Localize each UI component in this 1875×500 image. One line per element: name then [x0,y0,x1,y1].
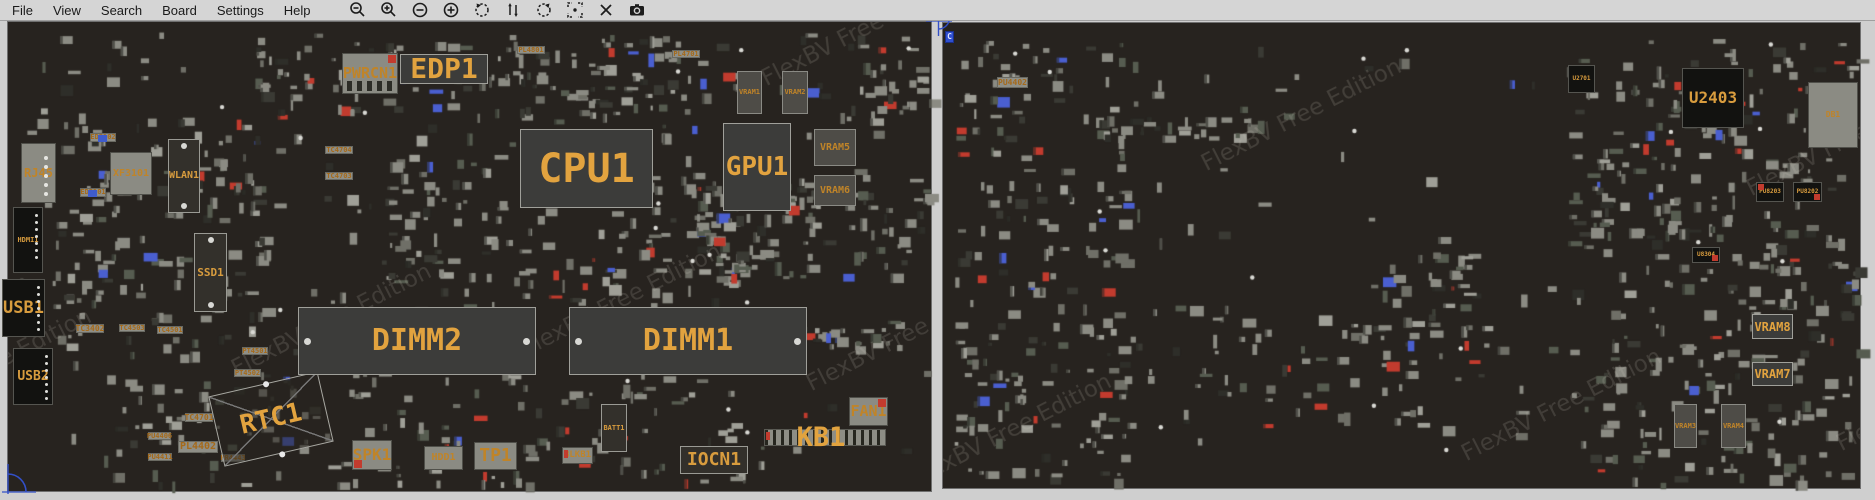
component-blkb1[interactable]: BLKB1 [562,447,593,464]
menu-board[interactable]: Board [152,1,207,20]
component-label: ED3101 [80,189,105,196]
component-tc4503[interactable]: TC4503 [119,324,145,332]
menu-search[interactable]: Search [91,1,152,20]
component-tc4703[interactable]: TC4703 [325,172,353,180]
free-edition-watermark: FlexBV Free Edition [1457,343,1666,466]
component-label: VRAM8 [1754,321,1790,333]
free-edition-watermark: FlexBV Free Edition [802,273,932,396]
component-label: U2701 [1572,76,1590,82]
component-label: TC4704 [326,147,351,154]
component-dimm2[interactable]: DIMM2 [298,307,536,375]
component-label: DB1 [1826,111,1840,119]
component-pu4402[interactable]: PU4402 [997,77,1028,88]
component-label: KB1 [797,424,846,451]
component-label: TC4503 [119,325,144,332]
component-usb1[interactable]: USB1 [2,279,45,337]
component-label: PT4502 [235,370,260,377]
component-dimm1[interactable]: DIMM1 [569,307,807,375]
component-label: HDMI1 [17,237,38,244]
component-spk1[interactable]: SPK1 [352,440,392,470]
component-usb2[interactable]: USB2 [13,348,53,405]
component-label: VRAM3 [1675,423,1696,430]
component-label: CPU1 [538,149,634,189]
component-label: PU8203 [1759,189,1781,195]
component-c[interactable]: C [945,31,954,43]
component-label: FAN1 [850,404,886,419]
menu-help[interactable]: Help [274,1,321,20]
component-label: WLAN1 [169,171,199,181]
component-label: IOCN1 [687,451,741,469]
component-label: TC3402 [76,325,105,333]
component-label: C [947,33,952,41]
component-pu4406[interactable]: PU4406 [148,432,171,440]
component-label: USB2 [17,370,48,383]
free-edition-watermark: FlexBV Free Edition [1832,333,1861,456]
component-label: PWRCN1 [343,66,397,81]
component-label: PU4406 [147,433,172,440]
component-label: PU4402 [998,79,1027,87]
component-wlan1[interactable]: WLAN1 [168,139,200,213]
component-label: ED3102 [90,134,115,141]
component-label: PL4701 [673,51,698,58]
rotate-cw-icon[interactable] [535,1,553,19]
component-vram6[interactable]: VRAM6 [814,175,856,206]
toolbar [349,1,646,19]
component-label: XF3101 [113,169,149,179]
component-label: GPU1 [726,154,789,180]
component-label: TC4701 [185,414,214,422]
component-u2403[interactable]: U2403 [1682,68,1744,128]
center-view-icon[interactable] [566,1,584,19]
rotate-ccw-icon[interactable] [473,1,491,19]
component-tc3402[interactable]: TC3402 [76,324,104,333]
workspace: FlexBV Free EditionFlexBV Free EditionFl… [0,21,1875,500]
component-pt4501[interactable]: PT4501 [242,347,268,355]
component-label: RJ45 [24,167,53,179]
component-pl4801[interactable]: PL4801 [517,46,545,54]
component-kb1[interactable]: KB1 [786,420,856,454]
component-batt1[interactable]: BATT1 [601,404,627,452]
component-pwrcn1[interactable]: PWRCN1 [342,53,398,94]
zoom-out-icon[interactable] [349,1,367,19]
component-pu4411[interactable]: PU4411 [148,453,172,461]
component-label: PL4402 [180,442,216,452]
component-label: SSD1 [197,267,224,278]
component-label: SPK1 [353,447,392,463]
component-vram1[interactable]: VRAM1 [737,71,762,114]
minus-circle-icon[interactable] [411,1,429,19]
component-ed3101[interactable]: ED3101 [80,188,106,197]
component-label: RTC1 [238,399,305,438]
component-label: DIMM1 [643,326,733,356]
component-pu8202[interactable]: PU8202 [1793,182,1822,202]
component-gpu1[interactable]: GPU1 [723,123,791,211]
component-label: BATT1 [603,425,624,432]
component-tp1[interactable]: TP1 [474,442,517,470]
component-vram7[interactable]: VRAM7 [1752,362,1793,386]
component-tc4501[interactable]: TC4501 [157,326,183,334]
component-db1[interactable]: DB1 [1808,82,1858,148]
component-label: PU4411 [147,454,172,461]
component-label: DIMM2 [372,326,462,356]
menu-bar: File View Search Board Settings Help [0,0,1875,21]
free-edition-watermark: FlexBV Free Edition [1197,53,1406,176]
component-label: USB1 [3,300,44,317]
component-xf3101[interactable]: XF3101 [110,152,152,195]
component-cpu1[interactable]: CPU1 [520,129,653,208]
component-pu8203[interactable]: PU8203 [1756,182,1784,202]
component-u8304[interactable]: U8304 [1692,247,1720,263]
component-ssd1[interactable]: SSD1 [194,233,227,312]
component-vram5[interactable]: VRAM5 [814,129,856,166]
component-label: TC4501 [157,327,182,334]
component-label: VRAM6 [820,186,850,196]
component-iocn1[interactable]: IOCN1 [680,446,748,474]
component-label: VRAM5 [820,143,850,153]
component-label: PU8202 [1797,189,1819,195]
component-pl4701[interactable]: PL4701 [672,50,700,58]
component-label: VRAM7 [1754,368,1790,380]
component-label: BLKB1 [564,451,591,460]
component-tc4704[interactable]: TC4704 [325,146,353,154]
menu-view[interactable]: View [43,1,91,20]
menu-settings[interactable]: Settings [207,1,274,20]
screenshot-camera-icon[interactable] [628,1,646,19]
component-label: VRAM2 [784,89,805,96]
component-pl4402[interactable]: PL4402 [178,441,218,453]
component-tc4701[interactable]: TC4701 [185,413,213,422]
component-vram4[interactable]: VRAM4 [1721,404,1746,448]
component-vram8[interactable]: VRAM8 [1752,314,1793,339]
component-label: VRAM4 [1723,423,1744,430]
component-label: U8304 [1697,252,1715,258]
component-pt4502[interactable]: PT4502 [234,369,261,377]
component-label: EDP1 [410,55,477,83]
component-hdd1[interactable]: HDD1 [424,446,463,470]
component-label: PL4801 [518,47,543,54]
component-label: U2403 [1689,90,1737,106]
flexbv-window: File View Search Board Settings Help [0,0,1875,500]
free-edition-watermark: FlexBV Free Edition [942,368,1116,489]
component-label: VRAM1 [739,89,760,96]
component-rj45[interactable]: RJ45 [21,143,56,203]
component-ed3102[interactable]: ED3102 [90,133,116,142]
close-icon[interactable] [597,1,615,19]
component-vram3[interactable]: VRAM3 [1674,404,1697,448]
plus-circle-icon[interactable] [442,1,460,19]
flip-vertical-icon[interactable] [504,1,522,19]
component-u2701[interactable]: U2701 [1568,65,1595,93]
component-label: TP1 [479,447,512,465]
component-label: HDD1 [431,453,455,463]
component-vram2[interactable]: VRAM2 [782,71,808,114]
component-label: TC4703 [326,173,351,180]
component-edp1[interactable]: EDP1 [400,54,488,84]
zoom-in-icon[interactable] [380,1,398,19]
component-label: PT4501 [242,348,267,355]
menu-file[interactable]: File [2,1,43,20]
component-hdmi1[interactable]: HDMI1 [13,207,43,273]
